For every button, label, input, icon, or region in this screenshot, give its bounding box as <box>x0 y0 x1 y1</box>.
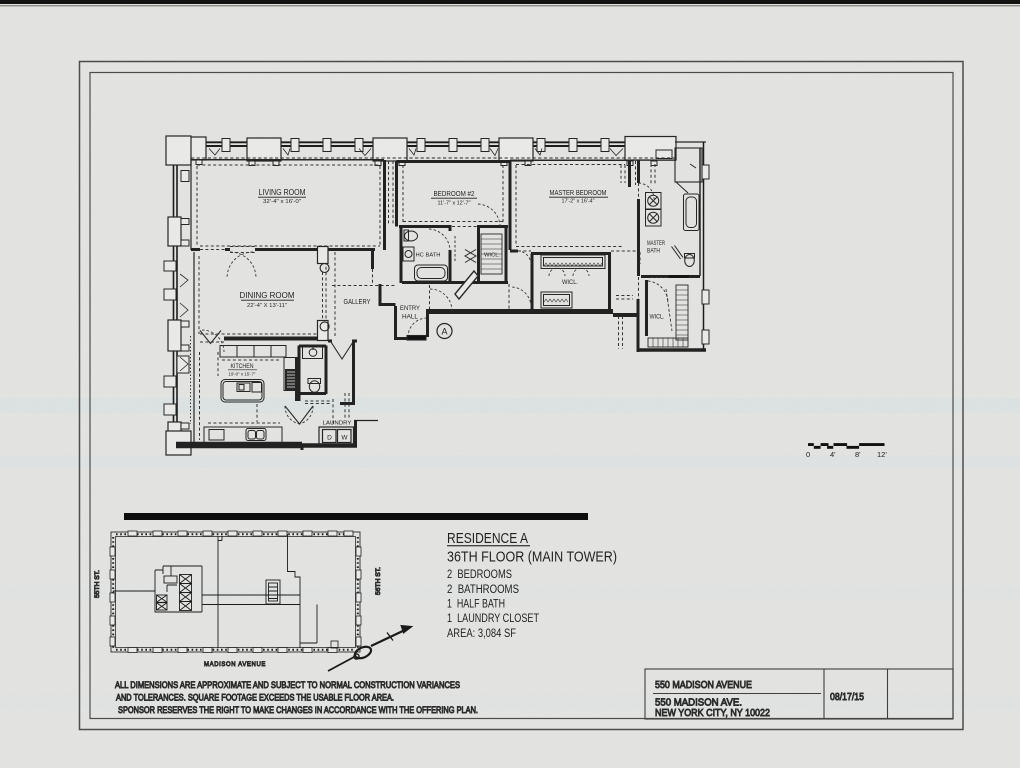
svg-text:KITCHEN: KITCHEN <box>231 363 254 370</box>
svg-text:LAUNDRY: LAUNDRY <box>323 421 352 427</box>
svg-text:LIVING ROOM: LIVING ROOM <box>259 188 306 197</box>
svg-text:11'-7" x 12'-7": 11'-7" x 12'-7" <box>438 201 471 207</box>
svg-text:BEDROOM #2: BEDROOM #2 <box>434 189 475 198</box>
svg-text:19'-0" x 15'-7": 19'-0" x 15'-7" <box>229 372 256 377</box>
svg-text:W: W <box>341 435 348 442</box>
svg-text:ALL DIMENSIONS ARE APPROXIMATE: ALL DIMENSIONS ARE APPROXIMATE AND SUBJE… <box>115 680 460 690</box>
svg-text:2 BEDROOMS: 2 BEDROOMS <box>447 569 512 581</box>
svg-text:DINING ROOM: DINING ROOM <box>240 291 295 300</box>
svg-text:08/17/15: 08/17/15 <box>830 691 864 703</box>
svg-text:8': 8' <box>855 450 861 459</box>
svg-text:MASTER BEDROOM: MASTER BEDROOM <box>550 188 607 197</box>
svg-text:GALLERY: GALLERY <box>344 297 371 306</box>
svg-text:32'-4" x 16'-0": 32'-4" x 16'-0" <box>263 199 301 205</box>
svg-text:1 LAUNDRY CLOSET: 1 LAUNDRY CLOSET <box>447 613 539 625</box>
svg-text:WICL.: WICL. <box>650 315 665 321</box>
svg-text:22'-4" X 13'-11": 22'-4" X 13'-11" <box>247 303 287 309</box>
svg-text:36TH FLOOR (MAIN TOWER): 36TH FLOOR (MAIN TOWER) <box>447 549 617 566</box>
svg-text:WICL.: WICL. <box>562 280 578 286</box>
svg-text:NEW YORK CITY, NY 10022: NEW YORK CITY, NY 10022 <box>655 707 770 719</box>
svg-text:D: D <box>327 435 332 442</box>
svg-text:12': 12' <box>877 450 887 459</box>
svg-text:MADISON AVENUE: MADISON AVENUE <box>204 661 266 668</box>
svg-text:BATH: BATH <box>647 249 660 255</box>
svg-text:A: A <box>441 327 447 337</box>
svg-text:WICL.: WICL. <box>484 253 500 259</box>
svg-text:0: 0 <box>806 450 810 459</box>
svg-text:550 MADISON AVENUE: 550 MADISON AVENUE <box>655 679 752 691</box>
svg-text:4': 4' <box>830 450 836 459</box>
svg-text:55TH ST.: 55TH ST. <box>94 570 101 598</box>
svg-text:SPONSOR RESERVES THE RIGHT TO: SPONSOR RESERVES THE RIGHT TO MAKE CHANG… <box>118 705 478 715</box>
svg-text:17'-2" x 16'-4": 17'-2" x 16'-4" <box>562 199 595 205</box>
svg-text:ENTRY: ENTRY <box>400 305 420 312</box>
svg-text:HALL: HALL <box>402 314 418 321</box>
svg-text:AREA: 3,084 SF: AREA: 3,084 SF <box>447 628 516 640</box>
svg-text:RESIDENCE A: RESIDENCE A <box>447 530 528 547</box>
svg-text:56TH ST.: 56TH ST. <box>375 567 382 595</box>
svg-text:1 HALF BATH: 1 HALF BATH <box>447 599 505 611</box>
svg-text:MASTER: MASTER <box>647 241 665 247</box>
svg-text:2 BATHROOMS: 2 BATHROOMS <box>447 584 519 596</box>
svg-text:HC BATH: HC BATH <box>416 253 441 259</box>
svg-text:AND TOLERANCES. SQUARE FOOTAG: AND TOLERANCES. SQUARE FOOTAGE EXCEEDS T… <box>116 693 394 703</box>
